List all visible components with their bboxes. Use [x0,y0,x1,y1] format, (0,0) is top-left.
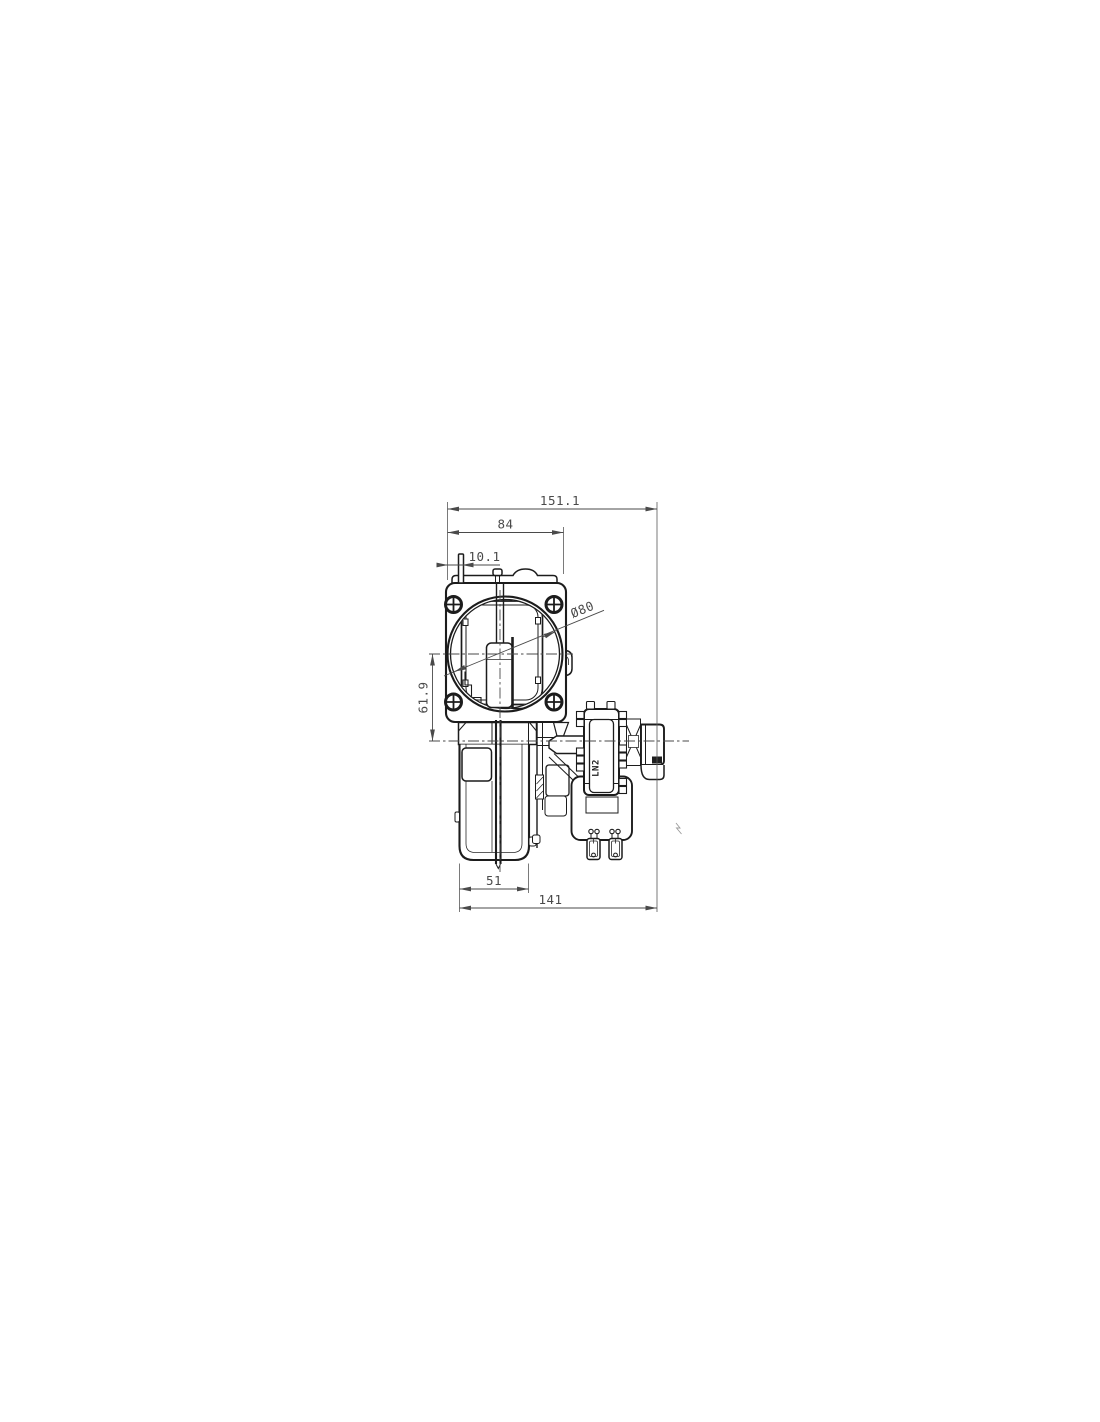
dim-axis-offset: 61.9 [416,654,433,741]
dim-overall-width-label: 151.1 [540,493,580,508]
top-pin-center-cap [493,569,502,576]
motor-stack-unit: LN2 [572,702,665,860]
screw-top-left [446,597,462,613]
bracket-block-2 [545,796,567,816]
dim-flange-offset: 10.1 [437,549,501,565]
dim-flange-width: 84 [448,517,564,533]
dim-overall-width: 151.1 [448,493,658,509]
motor-left-tab [455,812,460,822]
fan-housing [446,554,573,722]
motor-sticker [590,720,614,793]
top-pin-center [493,569,502,583]
dim-flange-width-label: 84 [497,517,513,532]
bracket-funnel [554,723,569,737]
dim-motor-width-label: 51 [486,873,502,888]
screw-bottom-left [446,694,462,710]
dim-motor-width: 51 [460,873,529,889]
stray-mark [676,823,682,834]
bracket-bolt [533,835,541,844]
impeller-hub [487,643,513,708]
dim-flange-offset-label: 10.1 [468,549,500,564]
technical-drawing-svg: LN2 [0,0,1100,1422]
bearing-bracket [627,719,641,766]
screw-top-right [546,597,562,613]
spade-terminal-right [609,839,622,860]
hatched-block [536,775,544,799]
flange-top-profile [452,569,557,583]
gear-motor-body [455,720,537,869]
screw-bottom-right [546,694,562,710]
motor-marking-label: LN2 [592,759,602,777]
dim-axis-offset-label: 61.9 [416,681,431,713]
spade-terminal-left [587,839,600,860]
motor-left-panel [462,748,492,781]
top-pin-center-stem [496,576,500,584]
bobbin-band [586,797,618,813]
end-cap-housing [641,725,664,780]
drawing-page: LN2 [0,0,1100,1422]
top-pin-left [459,554,464,583]
dim-fan-diameter-label: Ø80 [568,598,596,621]
dim-body-width-label: 141 [538,892,562,907]
dim-body-width: 141 [460,892,658,908]
bracket-block-1 [546,765,569,796]
